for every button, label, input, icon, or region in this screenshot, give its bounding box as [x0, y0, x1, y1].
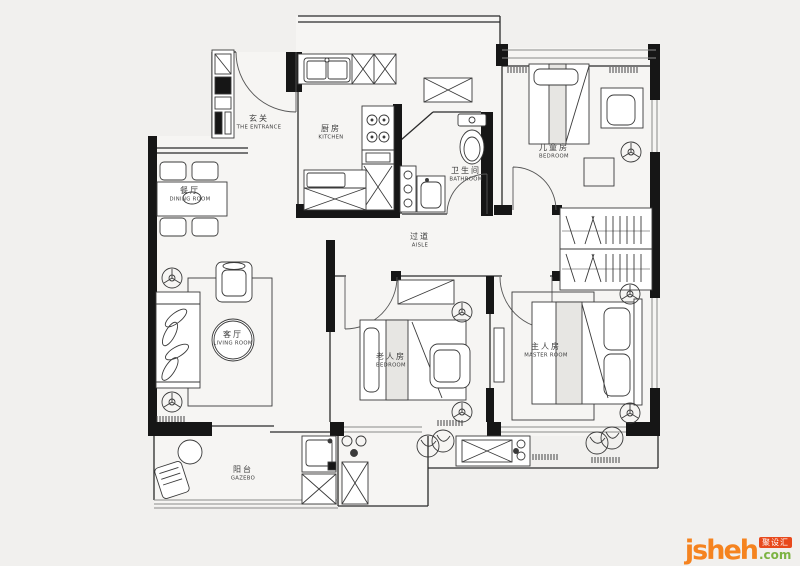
- jsheh-logo-text: jsheh: [685, 540, 757, 561]
- jsheh-logo-tld: .com: [759, 549, 791, 561]
- jsheh-logo-badge: 聚设汇: [759, 537, 792, 548]
- dining-table-set: [157, 162, 227, 236]
- wardrobe: [560, 208, 652, 290]
- ac-unit-platform: [456, 436, 530, 466]
- floor-plan-drawing: [0, 0, 800, 565]
- jsheh-logo-side: 聚设汇 .com: [759, 537, 792, 561]
- floor-plan-canvas: 玄关 THE ENTRANCE 餐厅 DINING ROOM 厨房 KITCHE…: [0, 0, 800, 565]
- jsheh-logo: jsheh 聚设汇 .com: [685, 537, 792, 561]
- shoe-cabinet: [212, 50, 234, 138]
